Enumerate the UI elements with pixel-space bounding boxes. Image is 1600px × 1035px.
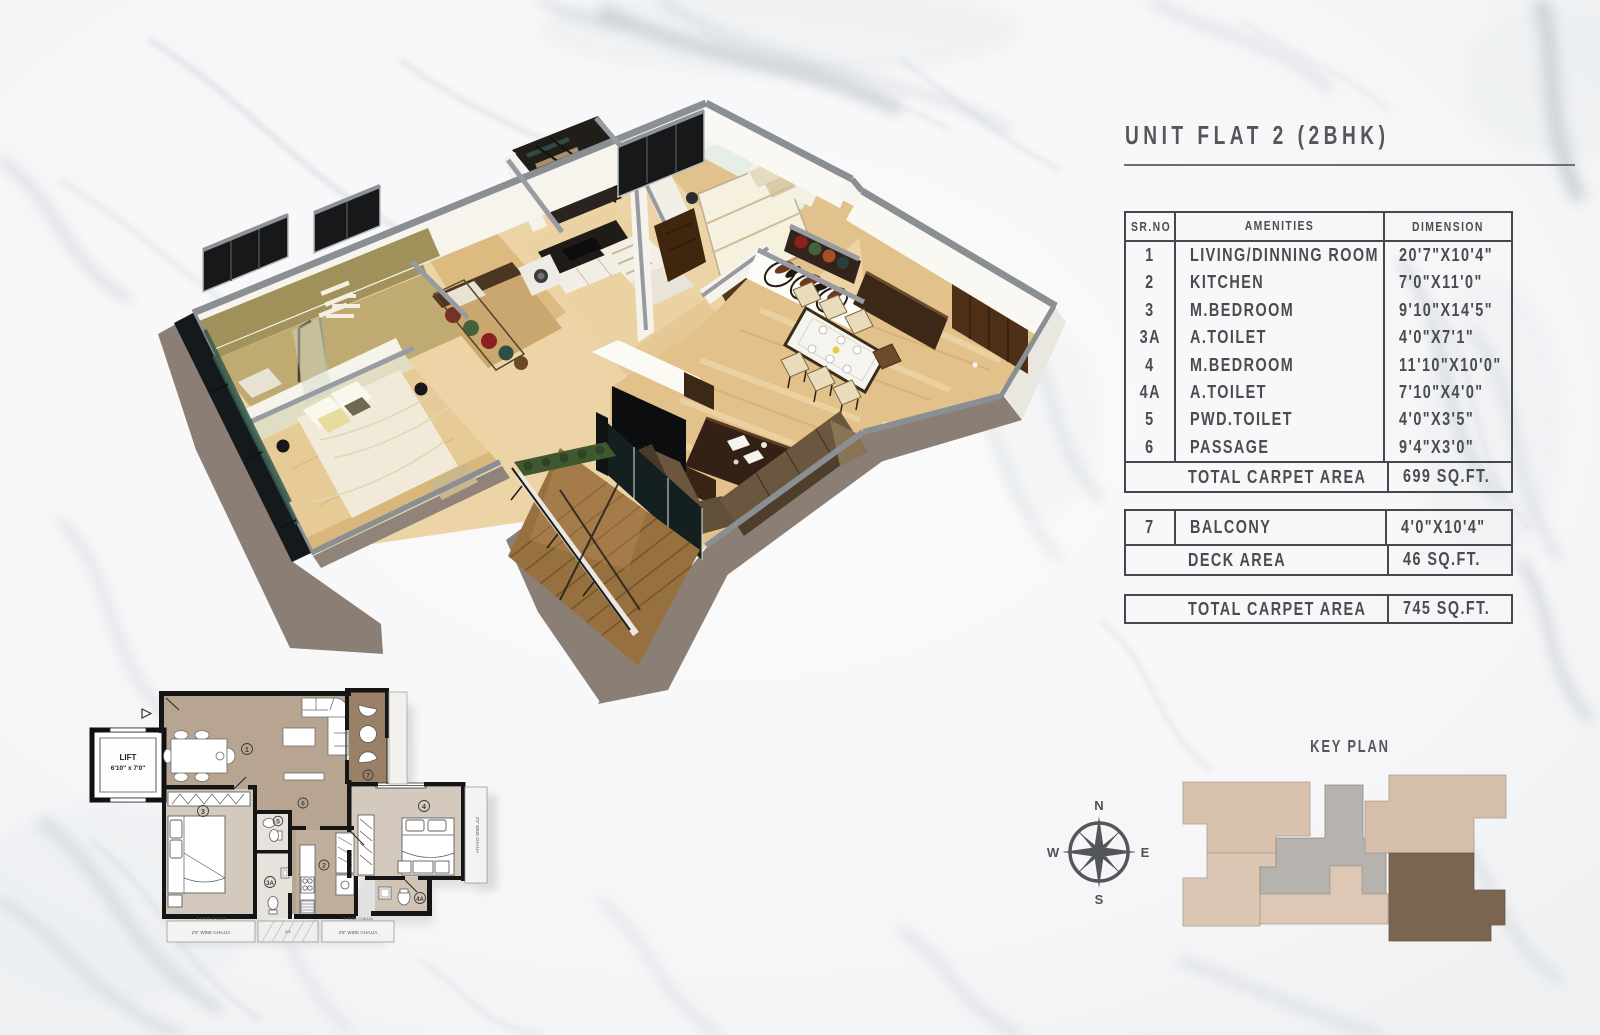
- svg-text:W: W: [1047, 845, 1060, 860]
- svg-text:3: 3: [201, 809, 205, 816]
- svg-text:2: 2: [322, 863, 326, 870]
- svg-text:8' WIDE CHAJJA: 8' WIDE CHAJJA: [343, 917, 373, 921]
- svg-text:2'6" WIDE CHAJJA: 2'6" WIDE CHAJJA: [192, 930, 231, 935]
- svg-text:2'6" WIDE CHAJJA: 2'6" WIDE CHAJJA: [339, 930, 378, 935]
- svg-text:2'6" WIDE CHAJJA: 2'6" WIDE CHAJJA: [475, 817, 480, 853]
- svg-text:1: 1: [245, 747, 249, 754]
- svg-text:LIFT: LIFT: [120, 753, 137, 762]
- svg-text:S: S: [1095, 892, 1104, 907]
- svg-text:5: 5: [276, 819, 280, 826]
- svg-text:3A: 3A: [266, 881, 274, 887]
- svg-text:5.5: 5.5: [285, 930, 290, 934]
- svg-text:KEY PLAN: KEY PLAN: [1310, 737, 1390, 757]
- svg-text:6: 6: [301, 801, 305, 808]
- svg-text:6'10" x 7'0": 6'10" x 7'0": [111, 765, 146, 772]
- svg-text:7: 7: [366, 773, 370, 780]
- svg-text:N: N: [1094, 798, 1103, 813]
- svg-text:4A: 4A: [416, 897, 424, 903]
- svg-text:8' WIDE CHAJJA: 8' WIDE CHAJJA: [196, 917, 226, 921]
- svg-text:4: 4: [422, 804, 426, 811]
- svg-text:E: E: [1141, 845, 1150, 860]
